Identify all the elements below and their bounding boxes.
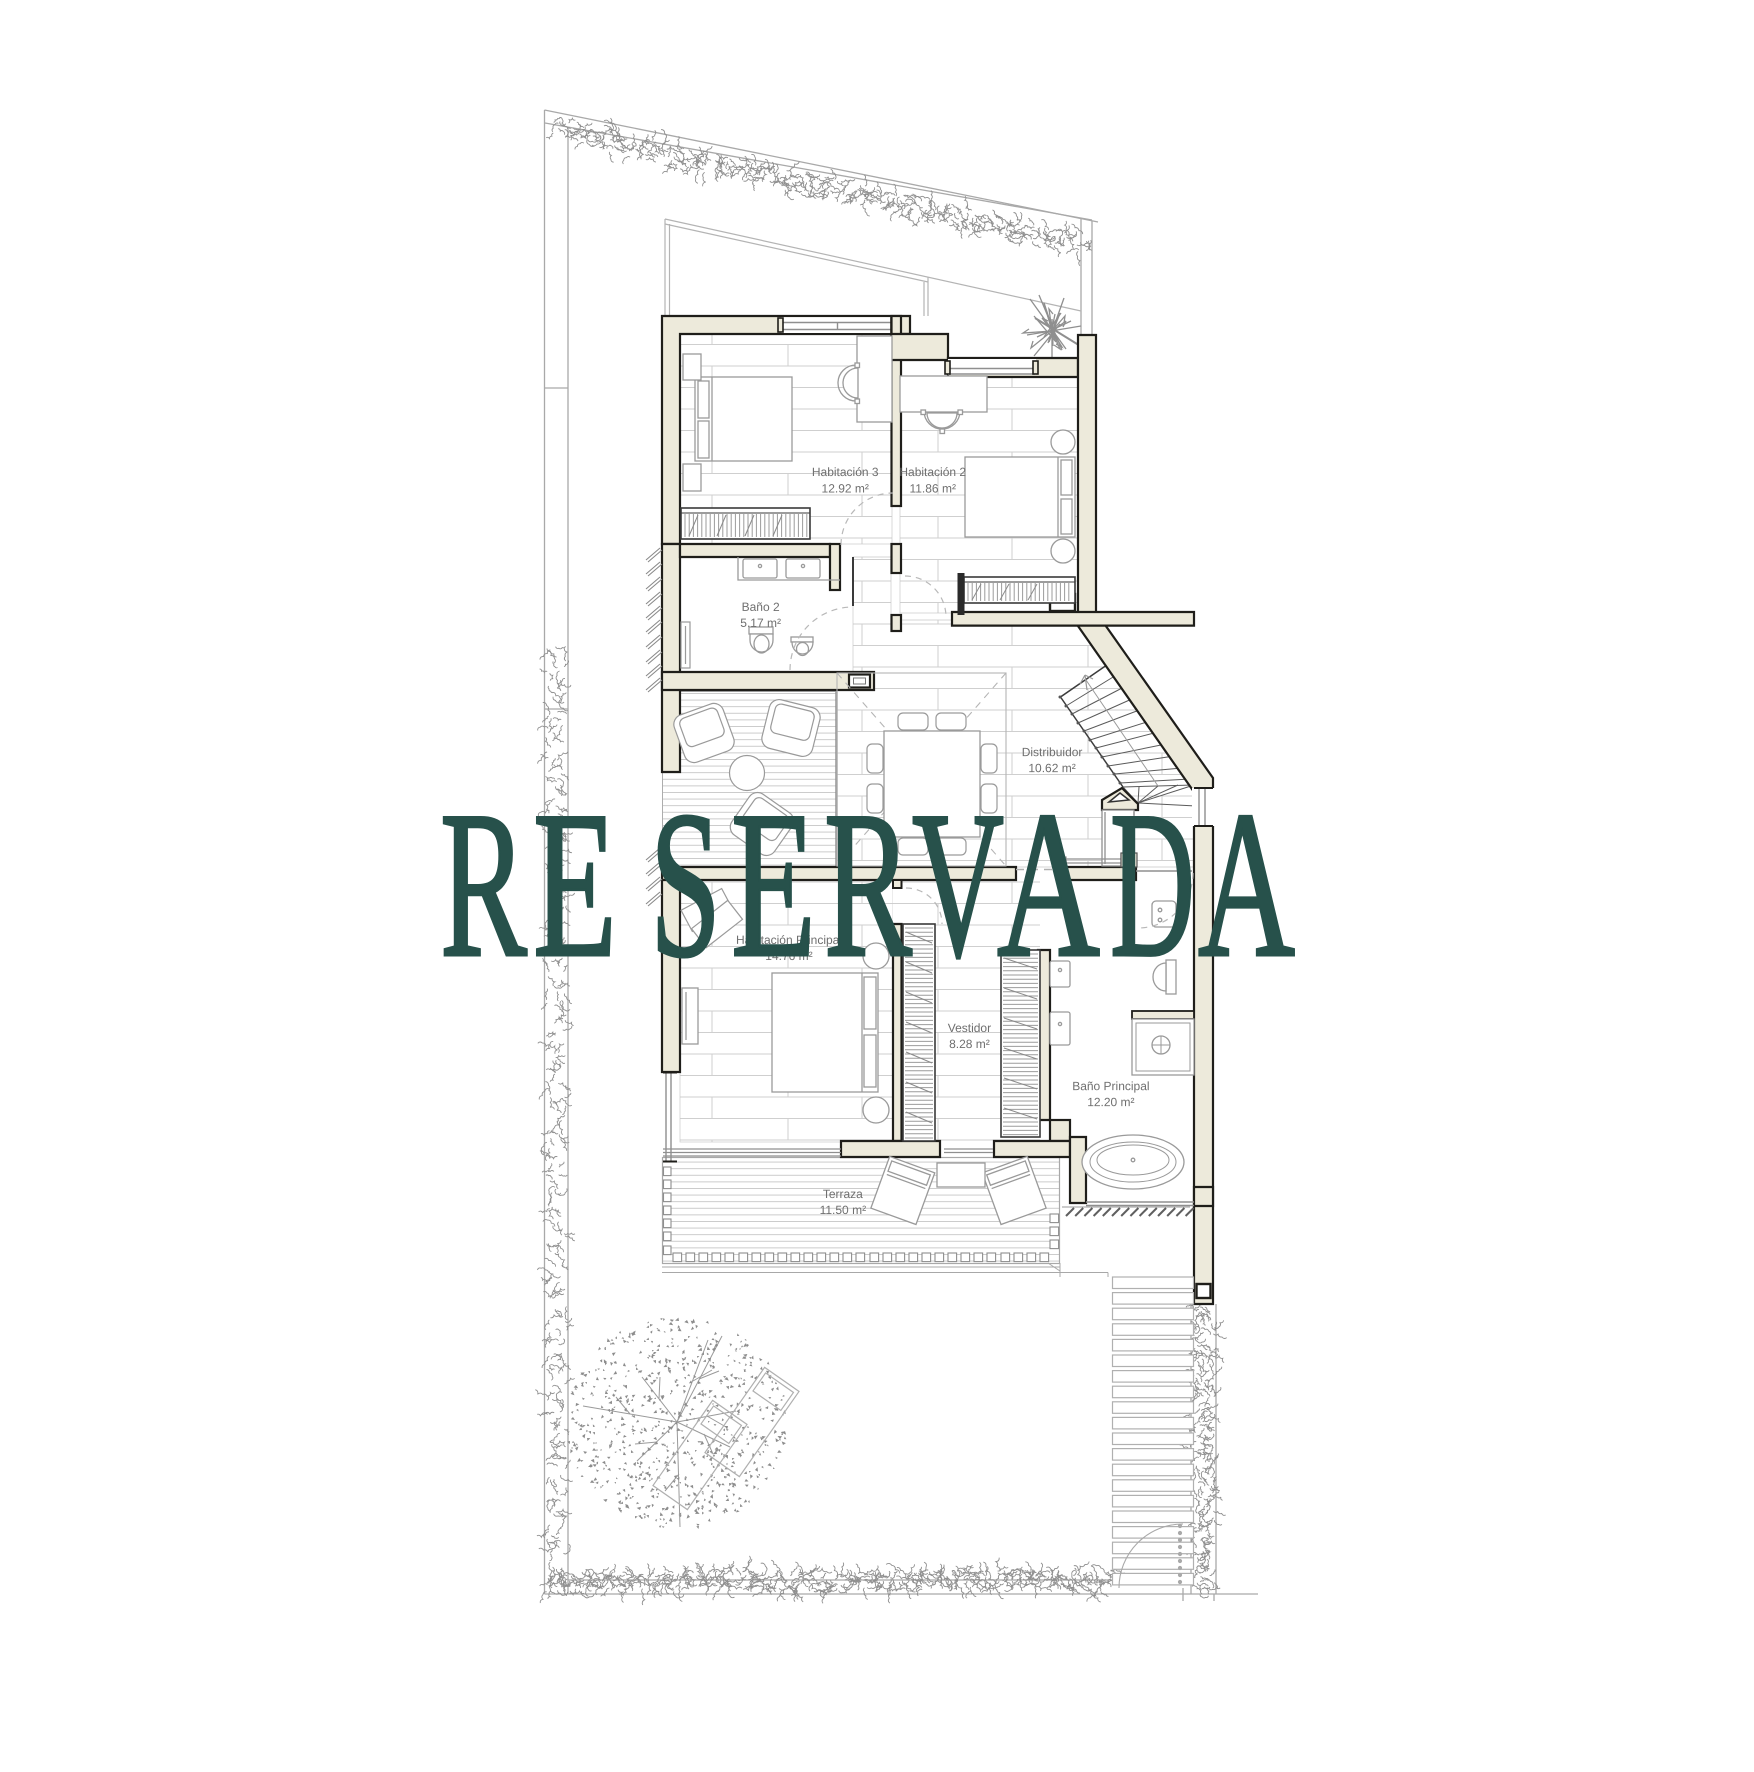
svg-text:D: D	[1110, 769, 1195, 1001]
svg-text:E: E	[731, 769, 816, 1001]
svg-text:S: S	[650, 769, 721, 1001]
svg-text:A: A	[997, 769, 1100, 1001]
svg-text:A: A	[1198, 769, 1295, 1001]
svg-text:12.92 m²: 12.92 m²	[822, 481, 869, 495]
svg-text:V: V	[912, 769, 1004, 1001]
svg-text:Terraza: Terraza	[823, 1187, 863, 1201]
svg-text:11.86 m²: 11.86 m²	[909, 482, 955, 496]
svg-text:R: R	[824, 769, 912, 1001]
svg-text:11.50 m²: 11.50 m²	[820, 1203, 866, 1217]
svg-text:5.17 m²: 5.17 m²	[740, 616, 781, 630]
svg-text:Vestidor: Vestidor	[948, 1021, 991, 1035]
svg-text:Baño 2: Baño 2	[742, 600, 780, 614]
svg-text:Distribuidor: Distribuidor	[1022, 745, 1083, 759]
svg-text:Baño Principal: Baño Principal	[1072, 1079, 1149, 1093]
svg-text:8.28 m²: 8.28 m²	[949, 1037, 990, 1051]
svg-text:R: R	[440, 769, 527, 1001]
svg-text:Habitación 3: Habitación 3	[812, 465, 879, 479]
svg-text:12.20 m²: 12.20 m²	[1087, 1095, 1134, 1109]
svg-text:Habitación 2: Habitación 2	[899, 465, 966, 479]
svg-text:E: E	[533, 769, 617, 1001]
